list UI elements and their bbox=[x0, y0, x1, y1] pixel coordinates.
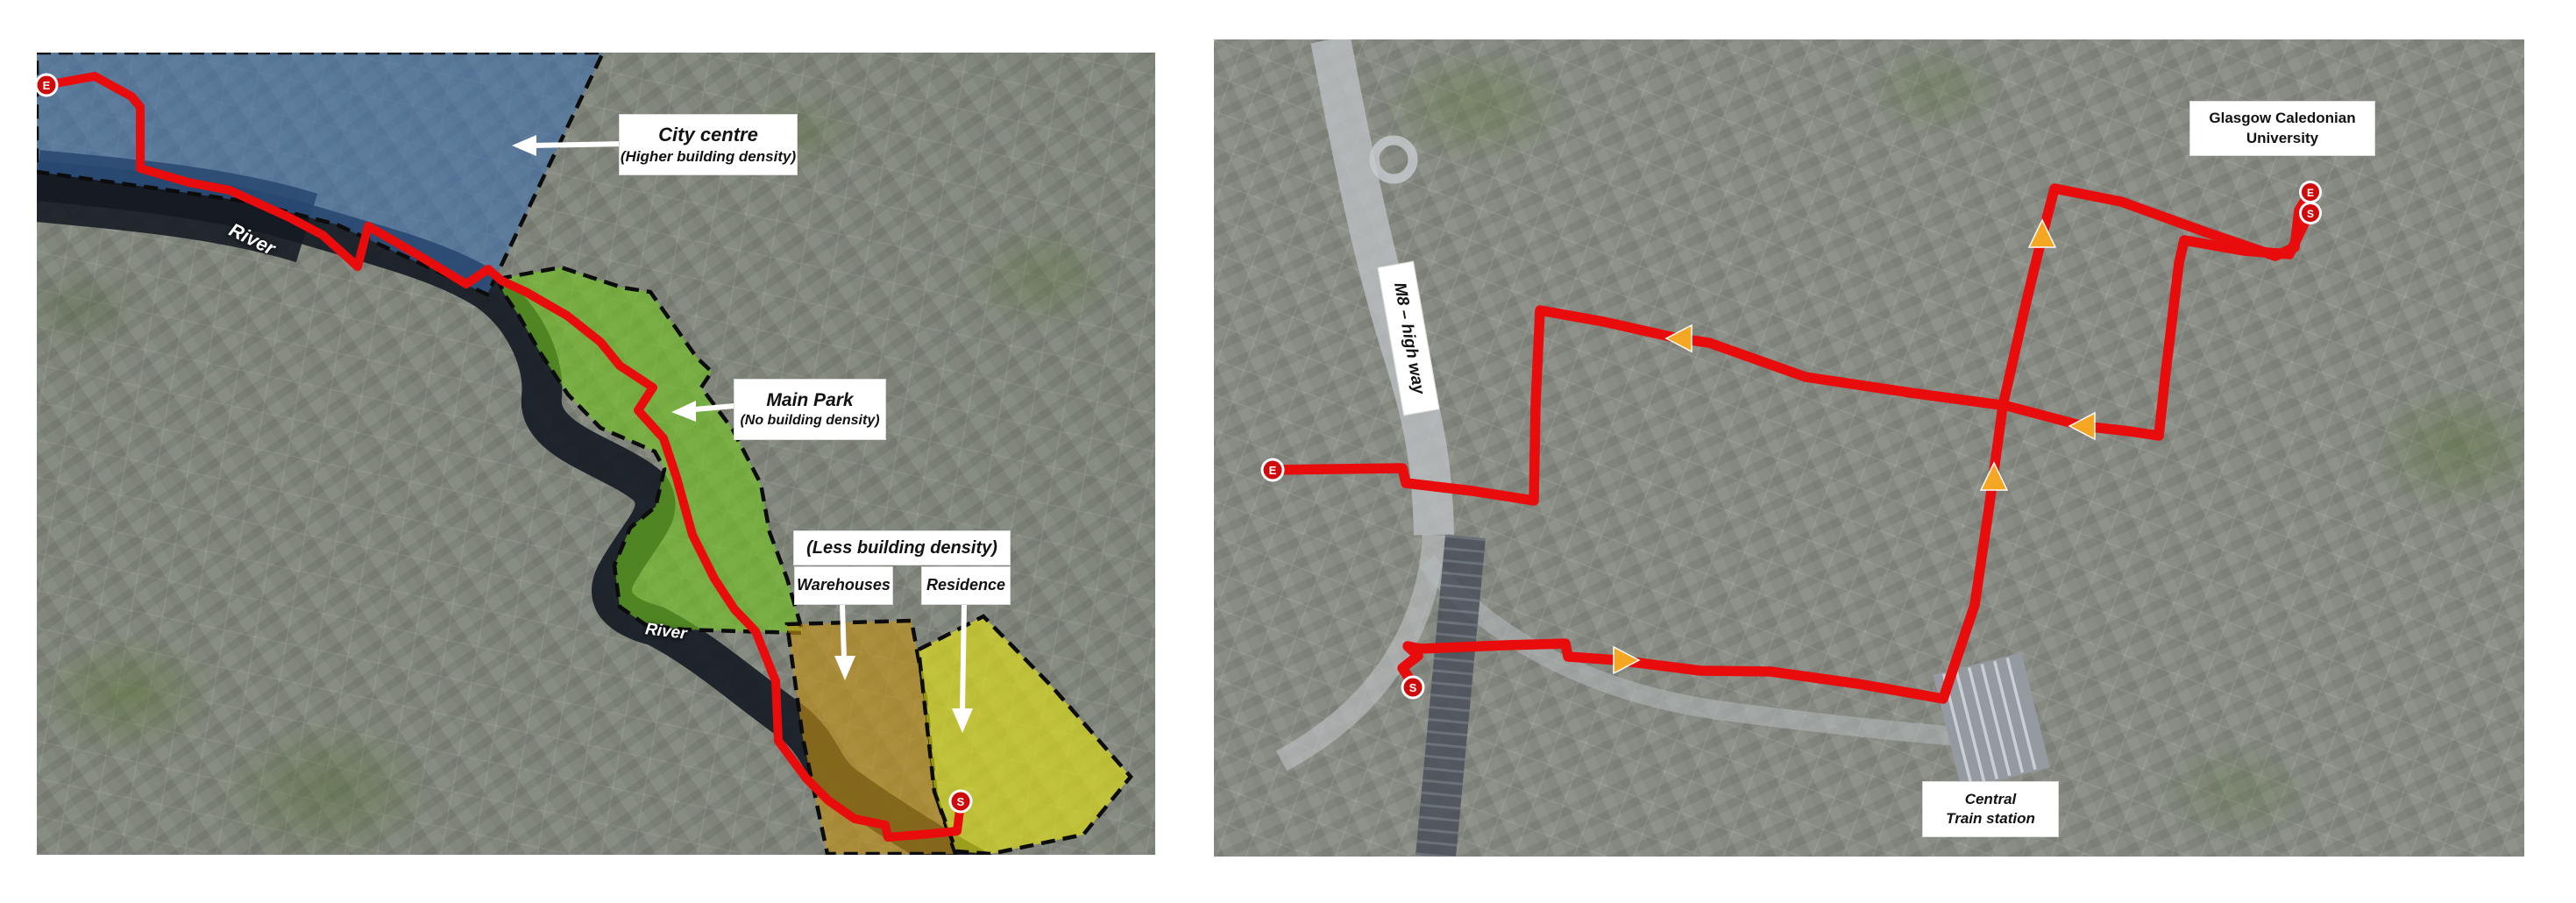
start-marker: S bbox=[949, 790, 973, 814]
route-arrow-right-icon bbox=[1614, 647, 1639, 673]
route-2-end-marker: E bbox=[2299, 181, 2322, 203]
less-density-label: (Less building density) bbox=[793, 530, 1011, 565]
central-station-label: Central Train station bbox=[1922, 781, 2059, 837]
route-1-end-marker: E bbox=[1261, 459, 1285, 482]
university-label-line2: University bbox=[2246, 129, 2318, 148]
less-density-label-text: (Less building density) bbox=[806, 537, 997, 559]
region-main-park bbox=[498, 267, 803, 633]
figure-canvas: E S City centre (Higher building density… bbox=[0, 0, 2576, 903]
route-2-end-letter: E bbox=[2307, 187, 2314, 199]
right-map-overlay: E S E S bbox=[1214, 39, 2524, 857]
central-station-label-line1: Central bbox=[1965, 790, 2017, 809]
warehouses-label: Warehouses bbox=[794, 566, 893, 605]
route-arrow-up-icon bbox=[2029, 220, 2055, 247]
warehouses-label-text: Warehouses bbox=[797, 575, 891, 595]
city-centre-label: City centre (Higher building density) bbox=[619, 114, 798, 175]
main-park-label: Main Park (No building density) bbox=[734, 379, 886, 440]
university-label: Glasgow Caledonian University bbox=[2189, 101, 2375, 156]
left-map-overlay: E S bbox=[37, 53, 1155, 855]
residence-label: Residence bbox=[921, 566, 1011, 605]
residence-label-text: Residence bbox=[926, 575, 1005, 595]
start-marker-letter: S bbox=[957, 795, 965, 808]
end-marker-letter: E bbox=[43, 79, 51, 92]
route-1-start-marker: S bbox=[2299, 202, 2322, 224]
route-arrow-left-icon bbox=[2069, 413, 2095, 439]
m8-motorway-band bbox=[1281, 39, 1981, 761]
main-park-label-line1: Main Park bbox=[766, 388, 853, 412]
route-2-start-letter: S bbox=[1409, 681, 1417, 694]
region-residence bbox=[919, 616, 1131, 854]
university-label-line1: Glasgow Caledonian bbox=[2209, 109, 2355, 128]
right-map-image: E S E S Glasgow Caledonian University bbox=[1214, 39, 2524, 857]
main-park-label-line2: (No building density) bbox=[740, 412, 879, 430]
route-1-end-letter: E bbox=[1269, 464, 1277, 477]
interchange-roundabout bbox=[1374, 140, 1413, 179]
city-centre-label-line2: (Higher building density) bbox=[621, 147, 796, 167]
city-centre-label-line1: City centre bbox=[658, 123, 758, 148]
route-2-start-marker: S bbox=[1402, 676, 1425, 700]
route-arrow-left-icon bbox=[1666, 325, 1692, 352]
left-map-image: E S City centre (Higher building density… bbox=[37, 53, 1155, 855]
route-arrow-up-icon bbox=[1981, 463, 2007, 490]
route-1-start-letter: S bbox=[2307, 208, 2314, 220]
central-station-label-line2: Train station bbox=[1946, 809, 2035, 828]
